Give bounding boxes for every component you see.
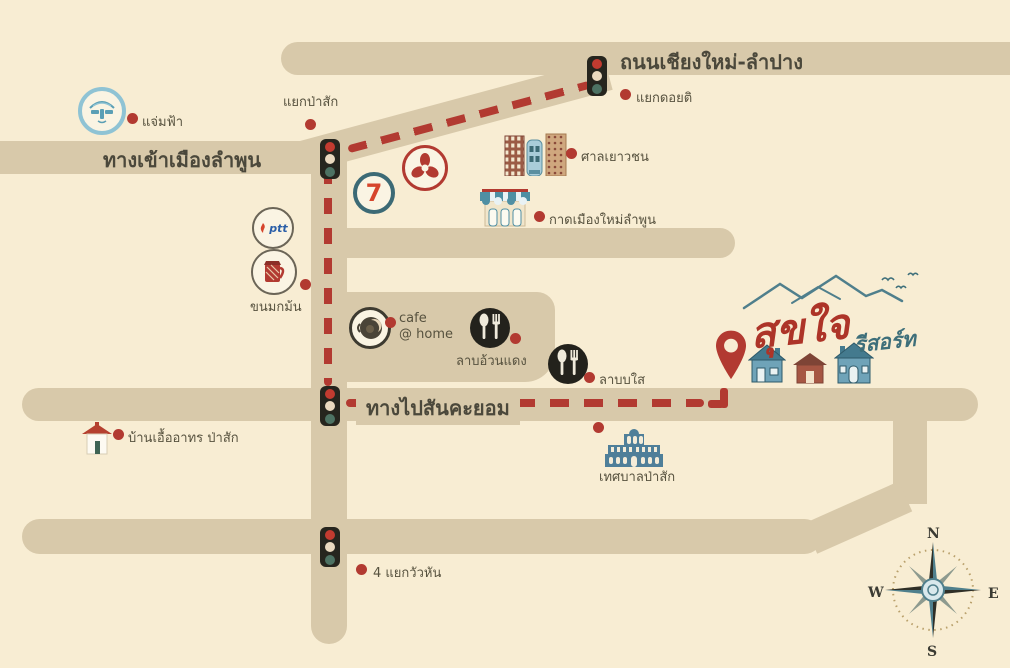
dessert-shop-label: ขนมกม้น [250, 296, 302, 317]
seven-eleven-icon: 7 [353, 172, 395, 214]
laab-sai-dot [584, 372, 595, 383]
resort-name: สุขใจ [747, 291, 853, 367]
seven-eleven-glyph: 7 [366, 179, 383, 207]
yak-doiti-dot [620, 89, 631, 100]
yak-pasak-label: แยกป่าสัก [283, 91, 338, 112]
municipal-building-icon [600, 427, 668, 467]
fork-spoon-icon-laab-sai [548, 344, 588, 384]
dessert-shop-dot [300, 279, 311, 290]
trefoil-logo-icon [402, 145, 448, 191]
laab-sai-label: ลาบบใส [599, 369, 645, 390]
yak-pasak-dot [305, 119, 316, 130]
market-label: กาดเมืองใหม่ลำพูน [549, 209, 656, 230]
juvenile-court-label: ศาลเยาวชน [581, 146, 649, 167]
map-canvas: ถนนเชียงใหม่-ลำปาง ทางเข้าเมืองลำพูน ทาง… [0, 0, 1010, 668]
resort-name-suffix: รีสอร์ท [852, 323, 917, 362]
wua-hin-label: 4 แยกวัวหัน [373, 562, 441, 583]
cafe-label-line2: @ home [399, 327, 453, 343]
baan-uea-arthorn-dot [113, 429, 124, 440]
traffic-light-icon-wuahin [320, 527, 340, 567]
label-road-sankhayom: ทางไปสันคะยอม [356, 391, 520, 425]
market-dot [534, 211, 545, 222]
laab-uan-daeng-dot [510, 333, 521, 344]
jaemfah-logo-icon [78, 87, 126, 135]
fork-spoon-icon-laab-uan-daeng [470, 308, 510, 348]
ptt-glyph: ptt [269, 222, 287, 235]
jaemfah-dot [127, 113, 138, 124]
traffic-light-icon-sankhayom [320, 386, 340, 426]
label-road-lamphun-entrance: ทางเข้าเมืองลำพูน [103, 144, 261, 176]
market-icon [478, 184, 532, 228]
compass-north-label: N [927, 526, 940, 542]
dessert-cup-icon [251, 249, 297, 295]
wua-hin-dot [356, 564, 367, 575]
cafe-label: cafe @ home [399, 311, 453, 344]
traffic-light-icon-doiti [587, 56, 607, 96]
laab-uan-daeng-label: ลาบอ้วนแดง [456, 350, 527, 371]
map-pin-icon [716, 330, 746, 382]
cafe-label-line1: cafe [399, 311, 453, 327]
baan-uea-arthorn-label: บ้านเอื้ออาทร ป่าสัก [128, 427, 239, 448]
compass-south-label: S [927, 644, 937, 660]
compass-east-label: E [988, 586, 999, 602]
pasak-municipality-label: เทศบาลป่าสัก [599, 466, 675, 487]
route-vertical-dashes [324, 168, 332, 386]
jaemfah-label: แจ่มฟ้า [142, 111, 183, 132]
coffee-cup-icon [349, 307, 391, 349]
cafe-dot [385, 317, 396, 328]
compass-rose-icon [875, 530, 991, 650]
label-road-chiangmai-lampang: ถนนเชียงใหม่-ลำปาง [620, 46, 803, 78]
compass-west-label: W [868, 585, 884, 601]
ptt-icon: ptt [252, 207, 294, 249]
road-bottom [22, 519, 822, 554]
traffic-light-icon-pasak [320, 139, 340, 179]
buildings-icon [504, 128, 570, 176]
road-branch-court [340, 228, 735, 258]
juvenile-court-dot [566, 148, 577, 159]
birds-icon [882, 273, 918, 288]
yak-doiti-label: แยกดอยติ [636, 87, 692, 108]
house-icon-uea-arthorn [82, 422, 112, 456]
route-corner-vertical [720, 388, 728, 408]
